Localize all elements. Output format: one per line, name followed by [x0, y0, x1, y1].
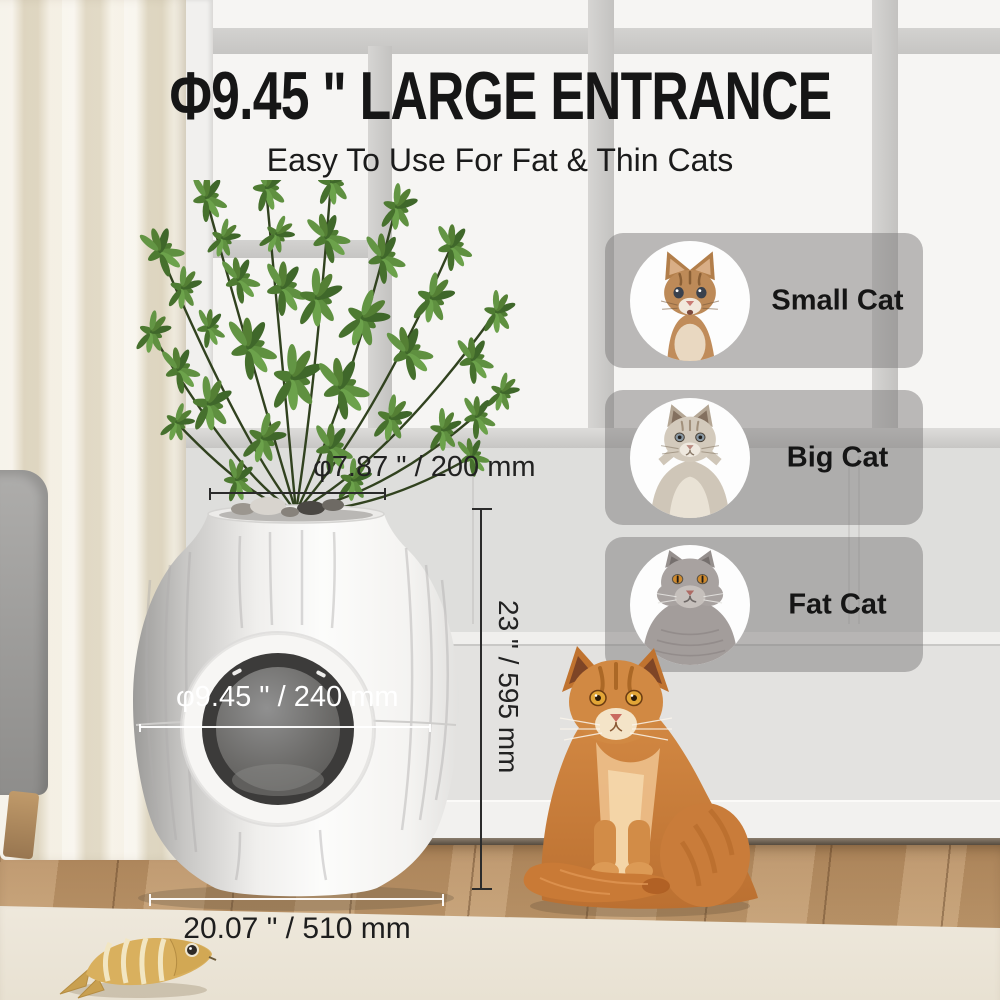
litter-box-entrance [181, 632, 375, 826]
dimension-line-height [480, 509, 482, 889]
dimension-line-base-width [150, 898, 443, 900]
dimension-label-entrance: φ9.45 " / 240 mm [176, 681, 388, 714]
kitten-illustration [630, 241, 750, 361]
dimension-label-height: 23 " / 595 mm [492, 600, 524, 773]
product-infographic: Small Cat [0, 0, 1000, 1000]
headline-title-text: Φ9.45 " LARGE ENTRANCE [169, 58, 831, 134]
dimension-line-entrance [140, 726, 430, 728]
size-card-small-cat: Small Cat [605, 233, 923, 368]
size-card-label: Big Cat [755, 441, 920, 474]
sofa-arm [0, 470, 48, 795]
size-card-big-cat: Big Cat [605, 390, 923, 525]
dimension-line-top-opening [210, 492, 385, 494]
size-card-label: Fat Cat [755, 588, 920, 621]
big-cat-photo [630, 398, 750, 518]
headline-title: Φ9.45 " LARGE ENTRANCE [0, 58, 1000, 134]
dimension-label-base-width: 20.07 " / 510 mm [157, 912, 437, 946]
maine-coon-cat-photo [510, 630, 780, 920]
headline-subtitle: Easy To Use For Fat & Thin Cats [0, 141, 1000, 179]
dimension-label-top-opening: φ7.87 " / 200 mm [313, 451, 536, 484]
kitten-photo [630, 241, 750, 361]
big-cat-illustration [630, 398, 750, 518]
size-card-label: Small Cat [755, 284, 920, 317]
litter-box-with-plant-image [90, 180, 520, 920]
